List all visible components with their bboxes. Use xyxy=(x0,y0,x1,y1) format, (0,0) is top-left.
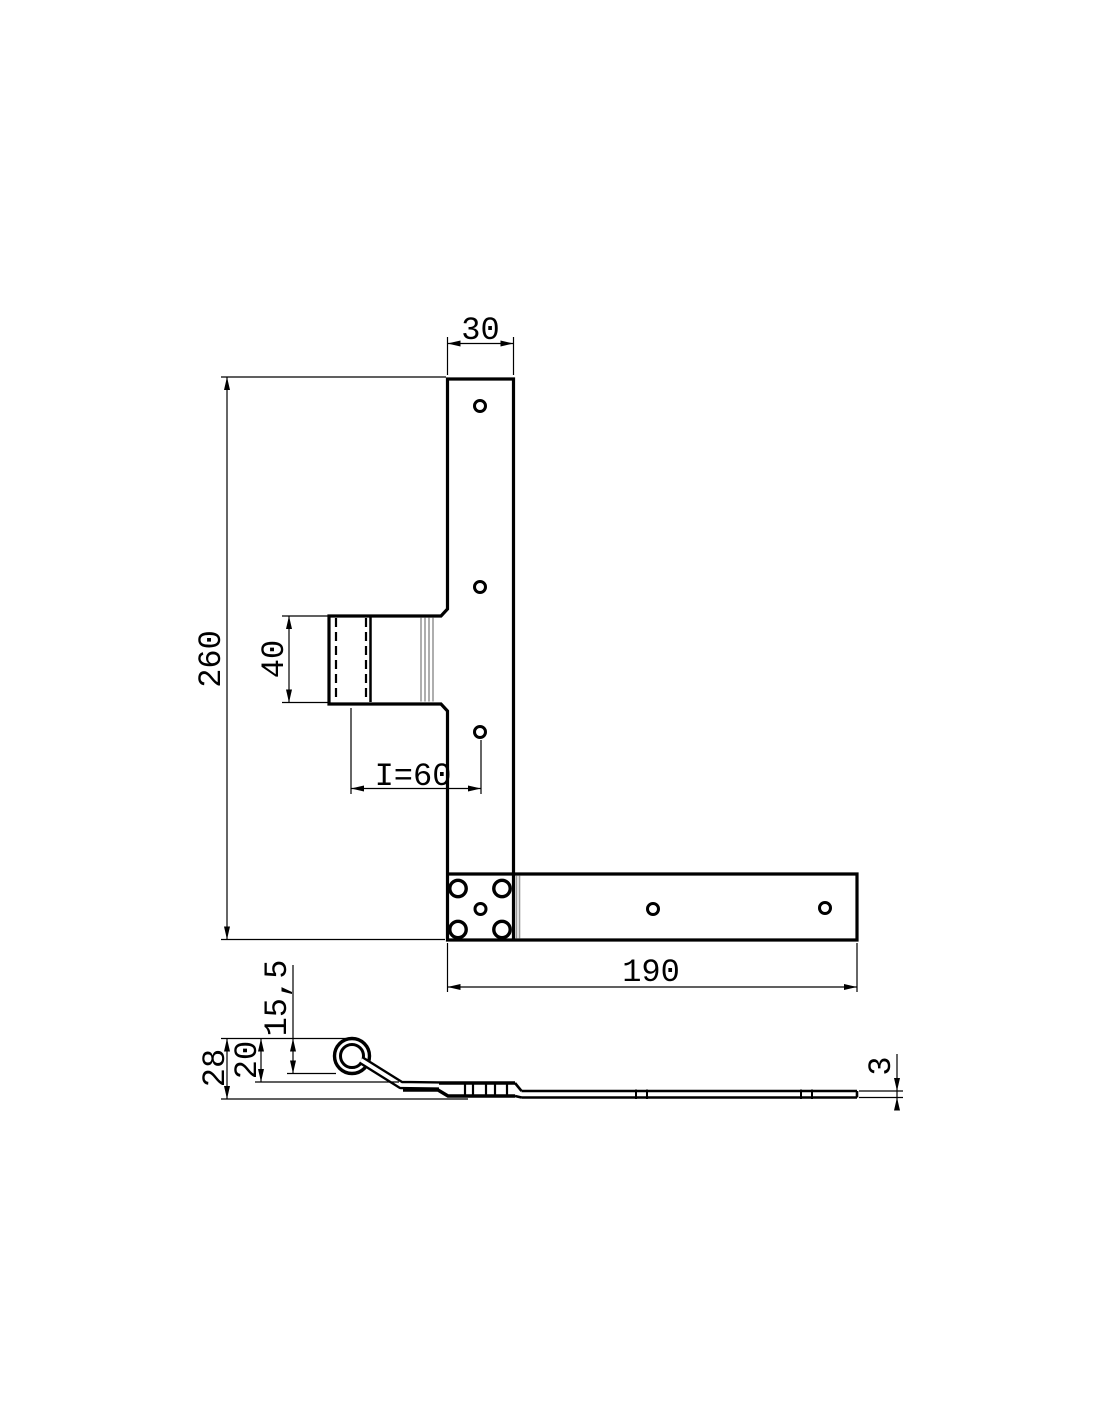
dimension-barrel-diameter: 15,5 xyxy=(259,960,336,1074)
bolt-hole xyxy=(494,921,510,937)
dim-knuckle-length-label: 40 xyxy=(256,640,293,678)
screw-hole xyxy=(648,904,659,915)
dim-barrel-diameter-label: 15,5 xyxy=(259,960,296,1037)
side-view: 28 20 15,5 3 xyxy=(197,960,903,1111)
dim-thickness-label: 3 xyxy=(863,1056,900,1075)
dimension-arm-length: 190 xyxy=(448,943,858,992)
dim-pin-to-hole-label: I=60 xyxy=(375,758,452,795)
bolt-hole xyxy=(450,921,466,937)
screw-hole xyxy=(820,903,831,914)
dim-offset-label: 20 xyxy=(229,1041,266,1079)
screw-hole xyxy=(475,727,486,738)
corner-plate-hatch xyxy=(517,876,520,939)
dimension-thickness: 3 xyxy=(859,1054,903,1111)
dimension-pin-to-hole: I=60 xyxy=(351,708,481,795)
technical-drawing: 30 260 40 I=60 xyxy=(0,0,1100,1422)
bolt-hole xyxy=(494,880,510,896)
knuckle-hatch xyxy=(421,618,433,702)
dim-arm-length-label: 190 xyxy=(622,954,680,991)
screw-hole xyxy=(475,401,486,412)
dimension-knuckle-length: 40 xyxy=(256,616,328,703)
screw-hole xyxy=(475,904,486,915)
screw-hole xyxy=(475,582,486,593)
knuckle xyxy=(336,617,433,702)
dim-strap-width-label: 30 xyxy=(461,312,499,349)
corner-plate xyxy=(450,880,510,937)
dimension-total-height: 260 xyxy=(193,377,446,940)
dimension-offset: 20 xyxy=(229,1039,399,1083)
hinge-outline xyxy=(329,379,857,940)
flat-strap-section xyxy=(522,1090,858,1100)
drawing-canvas: 30 260 40 I=60 xyxy=(0,0,1100,1422)
dim-total-height-label: 260 xyxy=(193,630,230,688)
dimension-strap-width: 30 xyxy=(448,312,514,375)
bolt-hole xyxy=(450,880,466,896)
front-view: 30 260 40 I=60 xyxy=(193,312,857,992)
